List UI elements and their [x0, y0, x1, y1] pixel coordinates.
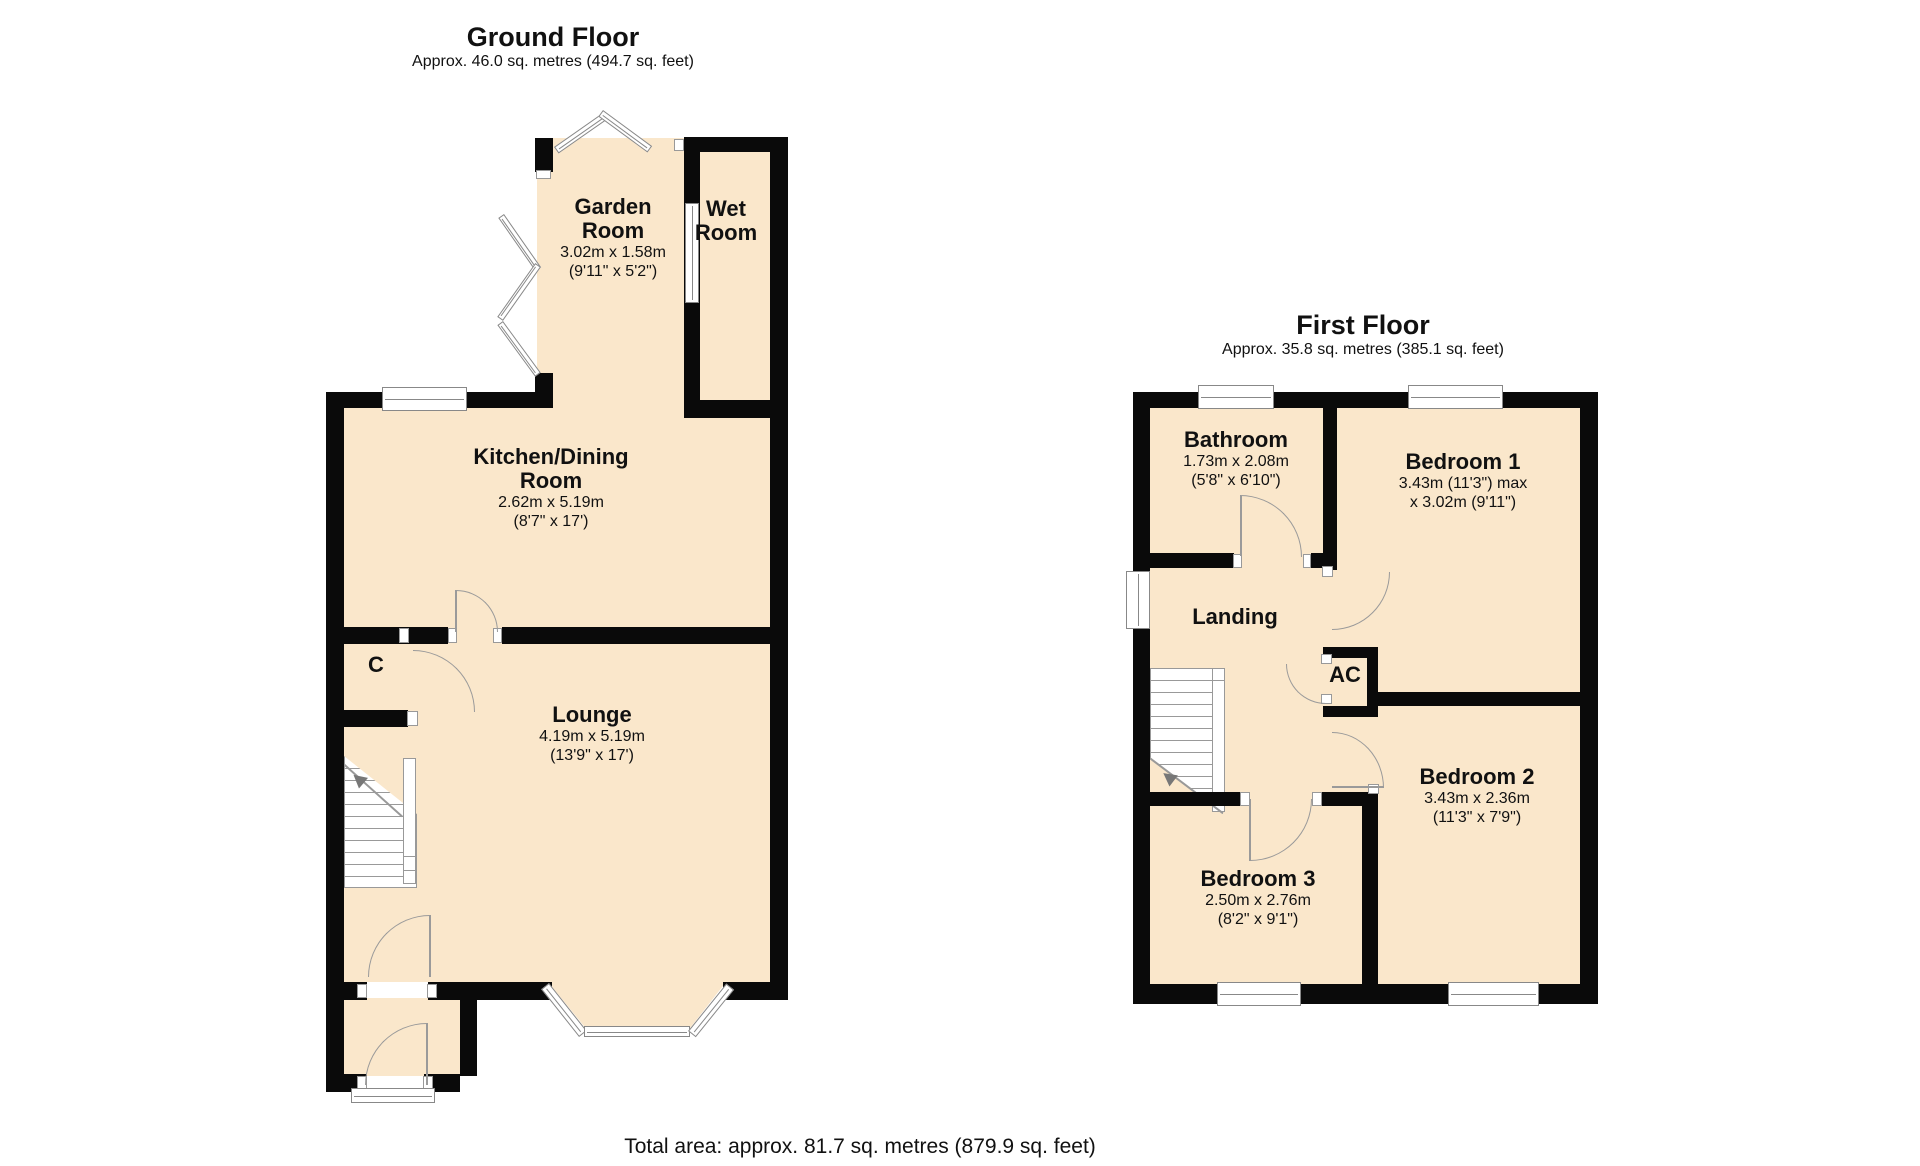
door-jamb — [399, 628, 409, 643]
kitchen-window — [382, 387, 467, 411]
wall-kitchen-lounge-a — [326, 627, 448, 644]
total-area-text: Total area: approx. 81.7 sq. metres (879… — [560, 1135, 1160, 1159]
first-floor-plan: First Floor Approx. 35.8 sq. metres (385… — [0, 0, 1920, 1166]
wall-cupboard-bottom — [326, 710, 408, 727]
bedroom2-window — [1448, 982, 1539, 1006]
first-floor-subtitle: Approx. 35.8 sq. metres (385.1 sq. feet) — [1163, 340, 1563, 360]
wall-garden-left-top — [535, 138, 553, 172]
room-label-bedroom1: Bedroom 1 3.43m (11'3") max x 3.02m (9'1… — [1343, 450, 1583, 512]
room-label-bedroom3: Bedroom 3 2.50m x 2.76m (8'2" x 9'1") — [1148, 867, 1368, 929]
wall-right-outer — [770, 137, 788, 1000]
porch-lounge-door-leaf — [429, 915, 431, 977]
door-jamb — [536, 170, 551, 179]
ground-floor-subtitle: Approx. 46.0 sq. metres (494.7 sq. feet) — [353, 52, 753, 72]
ground-stairs-newel — [403, 856, 416, 871]
room-label-lounge: Lounge 4.19m x 5.19m (13'9" x 17') — [492, 703, 692, 765]
bathroom-window — [1198, 385, 1274, 409]
wall-ac-bottom — [1323, 706, 1378, 717]
floorplan-page: Ground Floor Approx. 46.0 sq. metres (49… — [0, 0, 1920, 1166]
bay-window-front-pane — [584, 1026, 690, 1037]
wall-lounge-bottom-b — [428, 982, 552, 1000]
wall-wetroom-bottom — [684, 400, 770, 418]
room-label-kitchen-dining: Kitchen/Dining Room 2.62m x 5.19m (8'7" … — [441, 445, 661, 531]
front-door-leaf — [426, 1023, 428, 1085]
wall-porch-right — [460, 998, 477, 1076]
first-floor-title: First Floor — [1163, 310, 1563, 340]
door-jamb — [674, 139, 684, 151]
wall-kitchen-lounge-b — [502, 627, 770, 644]
door-jamb — [427, 984, 437, 998]
landing-window — [1126, 571, 1150, 629]
first-stairs-handrail — [1212, 670, 1225, 812]
ground-floor-title: Ground Floor — [353, 22, 753, 52]
wall-bath-bottom-a — [1150, 553, 1234, 568]
room-label-garden-room: Garden Room 3.02m x 1.58m (9'11" x 5'2") — [533, 195, 693, 281]
room-label-bathroom: Bathroom 1.73m x 2.08m (5'8" x 6'10") — [1146, 428, 1326, 490]
first-floor-title-block: First Floor Approx. 35.8 sq. metres (385… — [1163, 310, 1563, 360]
wall-bed3-top-a — [1150, 792, 1240, 806]
ground-floor-title-block: Ground Floor Approx. 46.0 sq. metres (49… — [353, 22, 753, 72]
wall-bed1-bottom — [1378, 692, 1580, 706]
kitchen-door-leaf — [455, 590, 457, 632]
first-stairs-newel — [1212, 668, 1225, 681]
door-jamb — [1303, 554, 1311, 568]
bathroom-door-leaf — [1240, 496, 1242, 556]
room-label-landing: Landing — [1150, 605, 1320, 629]
bedroom3-window — [1217, 982, 1301, 1006]
room-label-wet-room: Wet Room — [682, 197, 770, 245]
wall-garden-left-bottom — [535, 373, 553, 408]
room-label-ac: AC — [1325, 663, 1365, 687]
door-jamb — [407, 711, 418, 726]
room-label-cupboard: C — [358, 653, 394, 677]
door-jamb — [1312, 792, 1322, 806]
door-jamb — [357, 984, 367, 998]
front-door-step — [351, 1088, 435, 1103]
bedroom3-door-leaf — [1249, 799, 1251, 861]
bedroom1-window — [1408, 385, 1503, 409]
room-label-bedroom2: Bedroom 2 3.43m x 2.36m (11'3" x 7'9") — [1367, 765, 1587, 827]
